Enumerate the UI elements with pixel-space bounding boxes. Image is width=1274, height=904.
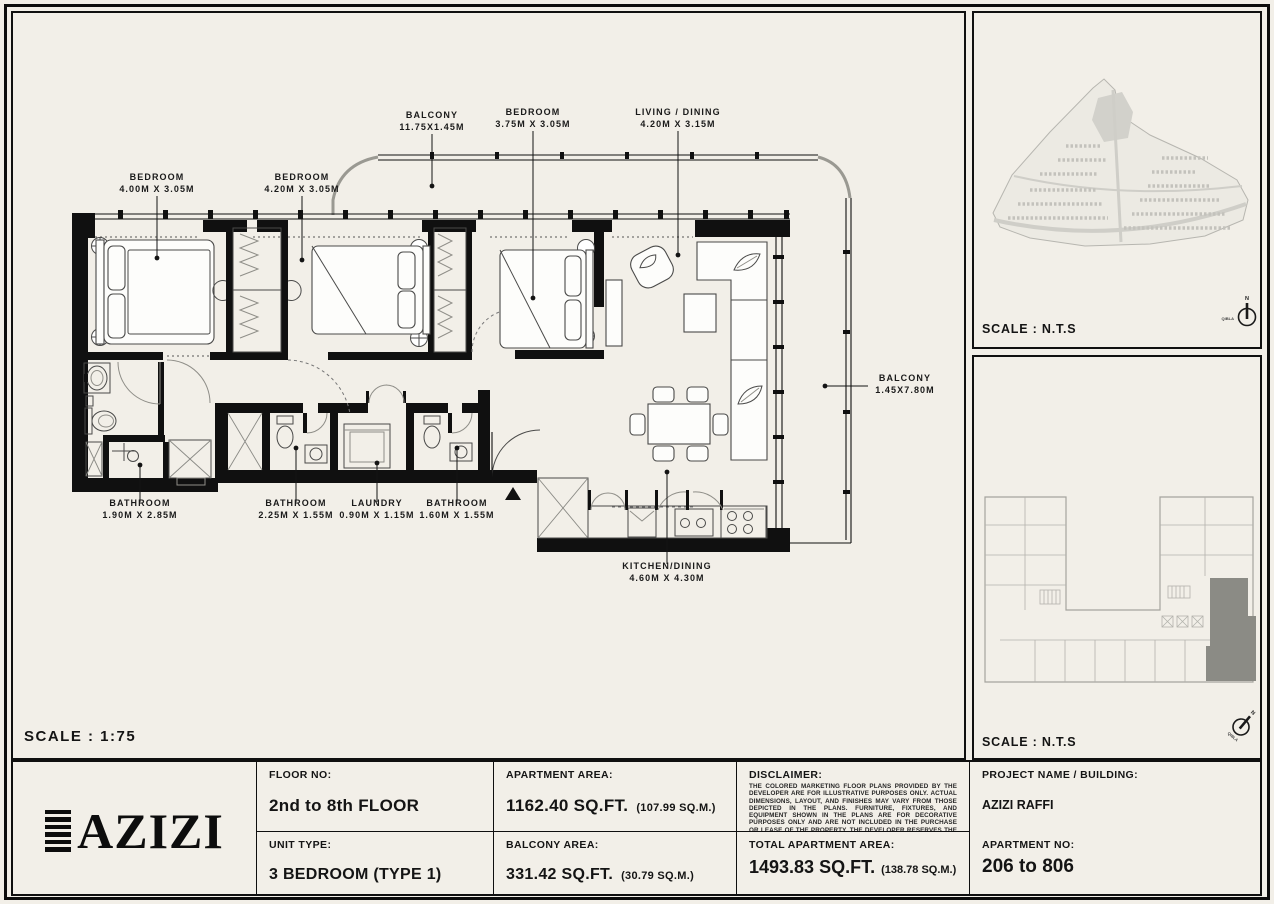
unit-type-label: UNIT TYPE: — [269, 839, 481, 851]
total-area-cell: TOTAL APARTMENT AREA: 1493.83 SQ.FT.(138… — [737, 832, 970, 896]
unit-type-value: 3 BEDROOM (TYPE 1) — [269, 866, 481, 884]
highlighted-unit — [1206, 578, 1256, 681]
room-label-balcony-right: BALCONY1.45X7.80M — [845, 373, 965, 396]
apartment-area-label: APARTMENT AREA: — [506, 769, 724, 781]
bed-1 — [96, 240, 214, 344]
dining-set — [630, 387, 728, 461]
laundry-fixtures — [344, 424, 390, 468]
balcony-area-label: BALCONY AREA: — [506, 839, 724, 851]
project-name-value: AZIZI RAFFI — [982, 798, 1252, 812]
site-map-scale-label: SCALE : N.T.S — [982, 322, 1076, 336]
bathroom-1-fixtures — [84, 363, 158, 476]
balcony-area-cell: BALCONY AREA: 331.42 SQ.FT.(30.79 SQ.M.) — [494, 832, 737, 896]
bed-3 — [500, 250, 593, 348]
key-plan-drawing — [985, 497, 1256, 682]
disclaimer-text: THE COLORED MARKETING FLOOR PLANS PROVID… — [749, 783, 957, 832]
balcony-area-value: 331.42 SQ.FT. — [506, 866, 613, 883]
compass-north-label: N — [1249, 710, 1256, 717]
kitchen-fixtures — [538, 478, 767, 538]
total-area-label: TOTAL APARTMENT AREA: — [749, 839, 957, 851]
disclaimer-cell: DISCLAIMER: THE COLORED MARKETING FLOOR … — [737, 762, 970, 832]
apartment-no-cell: APARTMENT NO: 206 to 806 — [970, 832, 1264, 896]
apartment-area-metric: (107.99 SQ.M.) — [636, 802, 715, 814]
key-plan-scale-label: SCALE : N.T.S — [982, 735, 1076, 749]
room-label-bedroom-3: BEDROOM3.75M X 3.05M — [473, 107, 593, 130]
site-map-compass: N QIBLA — [1222, 296, 1256, 326]
unit-type-cell: UNIT TYPE: 3 BEDROOM (TYPE 1) — [257, 832, 494, 896]
compass-qibla-label: QIBLA — [1222, 316, 1235, 321]
room-label-bathroom-3: BATHROOM1.60M X 1.55M — [397, 498, 517, 521]
bed-2 — [312, 246, 430, 334]
disclaimer-label: DISCLAIMER: — [749, 769, 957, 781]
compass-north-label: N — [1245, 296, 1249, 302]
balcony-area-metric: (30.79 SQ.M.) — [621, 870, 694, 882]
room-label-bedroom-2: BEDROOM4.20M X 3.05M — [242, 172, 362, 195]
room-label-living-dining: LIVING / DINING4.20M X 3.15M — [618, 107, 738, 130]
info-table: AZIZI FLOOR NO: 2nd to 8th FLOOR APARTME… — [11, 760, 1262, 896]
room-label-bedroom-1: BEDROOM4.00M X 3.05M — [97, 172, 217, 195]
project-name-label: PROJECT NAME / BUILDING: — [982, 769, 1252, 781]
key-plan-compass: N QIBLA — [1225, 706, 1260, 744]
project-name-cell: PROJECT NAME / BUILDING: AZIZI RAFFI — [970, 762, 1264, 832]
brand-cell: AZIZI — [13, 762, 257, 896]
main-scale-label: SCALE : 1:75 — [24, 728, 136, 745]
room-label-kitchen-dining: KITCHEN/DINING4.60M X 4.30M — [607, 561, 727, 584]
floor-no-cell: FLOOR NO: 2nd to 8th FLOOR — [257, 762, 494, 832]
apartment-no-label: APARTMENT NO: — [982, 839, 1252, 851]
wardrobe-2 — [434, 228, 466, 352]
floor-no-value: 2nd to 8th FLOOR — [269, 796, 481, 816]
apartment-area-value: 1162.40 SQ.FT. — [506, 796, 628, 815]
apartment-area-cell: APARTMENT AREA: 1162.40 SQ.FT.(107.99 SQ… — [494, 762, 737, 832]
compass-qibla-label: QIBLA — [1227, 731, 1240, 743]
bathroom-2-fixtures — [277, 416, 327, 463]
total-area-value: 1493.83 SQ.FT. — [749, 857, 875, 877]
floor-plan-sheet: N QIBLA — [0, 0, 1274, 904]
azizi-logo: AZIZI — [45, 809, 224, 853]
floor-no-label: FLOOR NO: — [269, 769, 481, 781]
room-label-bathroom-1: BATHROOM1.90M X 2.85M — [80, 498, 200, 521]
apartment-no-value: 206 to 806 — [982, 856, 1252, 878]
total-area-metric: (138.78 SQ.M.) — [881, 864, 956, 876]
brand-name: AZIZI — [77, 809, 224, 853]
azizi-logo-bars-icon — [45, 810, 71, 852]
site-map-drawing — [993, 79, 1248, 246]
